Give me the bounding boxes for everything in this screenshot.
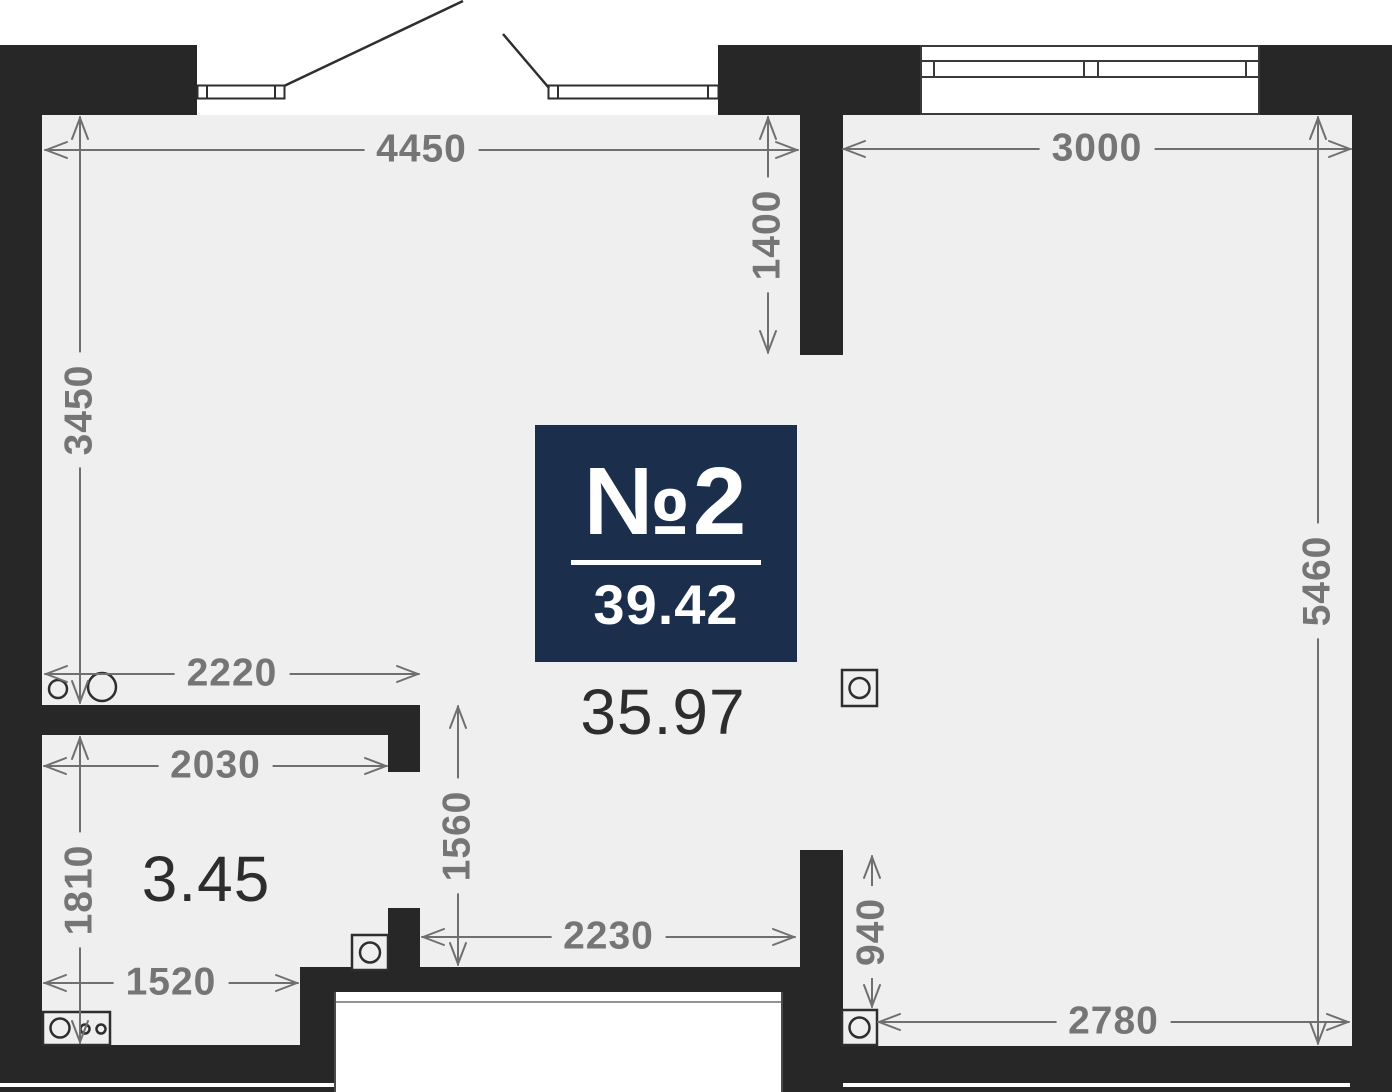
dimension-label-5460: 5460 [1298, 523, 1339, 638]
door-leaf [549, 86, 719, 99]
dimension-label-2220: 2220 [175, 654, 290, 695]
dimension-label-3000: 3000 [1040, 129, 1155, 170]
dimension-label-1810: 1810 [60, 833, 101, 948]
sink-circle-large [88, 673, 116, 701]
appliance-left [352, 935, 388, 970]
badge-divider [571, 560, 761, 565]
dimension-label-2230: 2230 [551, 917, 666, 958]
sink-circle-small [49, 680, 67, 698]
dimension-label-1400: 1400 [748, 178, 789, 293]
appliance-bottom [842, 1010, 877, 1045]
room-area-kitchen: 3.45 [142, 842, 271, 916]
door-swing-line [503, 34, 549, 88]
dimension-label-4450: 4450 [364, 130, 479, 171]
stove [43, 1012, 110, 1045]
door-leaf [198, 86, 285, 99]
dimension-label-2780: 2780 [1056, 1002, 1171, 1043]
door-swing-line [284, 1, 463, 86]
appliance-top [842, 670, 877, 706]
dimension-label-1560: 1560 [438, 778, 479, 893]
dimension-label-1520: 1520 [114, 963, 229, 1004]
unit-number: №2 [584, 454, 748, 550]
dimension-label-2030: 2030 [158, 746, 273, 787]
unit-badge: №2 39.42 [535, 425, 797, 662]
unit-total-area: 39.42 [593, 577, 738, 633]
dimension-label-940: 940 [852, 885, 893, 977]
dimension-label-3450: 3450 [60, 353, 101, 468]
floor-plan: 4450300022202030223015202780345014005460… [0, 0, 1392, 1092]
room-area-main-room: 35.97 [580, 675, 745, 749]
